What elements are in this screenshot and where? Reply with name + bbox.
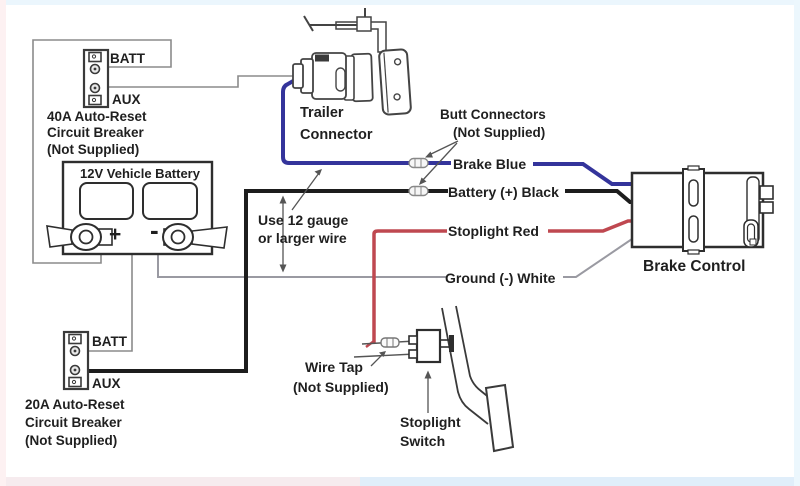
breaker40-caption-2: Circuit Breaker [47,125,145,140]
butt-connector-black [409,187,428,196]
wire-label-battery-black: Battery (+) Black [448,184,559,200]
wire-tap-label-2: (Not Supplied) [293,379,389,395]
gauge-note-line-2: or larger wire [258,230,347,246]
trailer-connector-label-1: Trailer [300,105,344,121]
breaker40-batt-label: BATT [110,51,146,66]
bottom-right-edge-tint [360,477,800,486]
gauge-note-line-1: Use 12 gauge [258,212,348,228]
bottom-left-edge-tint [0,477,360,486]
butt-connectors-label-2: (Not Supplied) [453,125,545,140]
stoplight-switch-label-1: Stoplight [400,414,461,430]
top-edge-tint [0,0,800,5]
breaker20-caption-2: Circuit Breaker [25,415,123,430]
breaker40-aux-label: AUX [112,92,141,107]
wire-label-brake-blue: Brake Blue [453,156,526,172]
butt-connectors-label-1: Butt Connectors [440,107,546,122]
battery-title: 12V Vehicle Battery [80,166,201,181]
trailer-connector-label-2: Connector [300,127,373,143]
wire-label-ground-white: Ground (-) White [445,270,556,286]
breaker20-aux-label: AUX [92,376,121,391]
wire-tap-connector [381,338,399,347]
butt-connector-blue [409,159,428,168]
breaker20-caption-3: (Not Supplied) [25,433,117,448]
brake-control-symbol [632,166,773,254]
breaker20-symbol [64,332,88,389]
stoplight-switch-label-2: Switch [400,433,445,449]
right-edge-tint [794,0,800,486]
breaker40-caption-1: 40A Auto-Reset [47,109,147,124]
wire-tap-label-1: Wire Tap [305,359,363,375]
battery-positive-sign: + [109,223,121,246]
brake-control-label: Brake Control [643,258,746,275]
breaker40-symbol [84,50,108,107]
wiring-diagram-canvas: 12V Vehicle Battery + - [0,0,800,486]
breaker20-batt-label: BATT [92,334,128,349]
left-edge-tint [0,0,6,486]
breaker40-caption-3: (Not Supplied) [47,142,139,157]
battery-negative-sign: - [150,215,159,245]
wire-label-stoplight-red: Stoplight Red [448,223,539,239]
wiring-diagram: 12V Vehicle Battery + - [0,0,800,486]
breaker20-caption-1: 20A Auto-Reset [25,397,125,412]
